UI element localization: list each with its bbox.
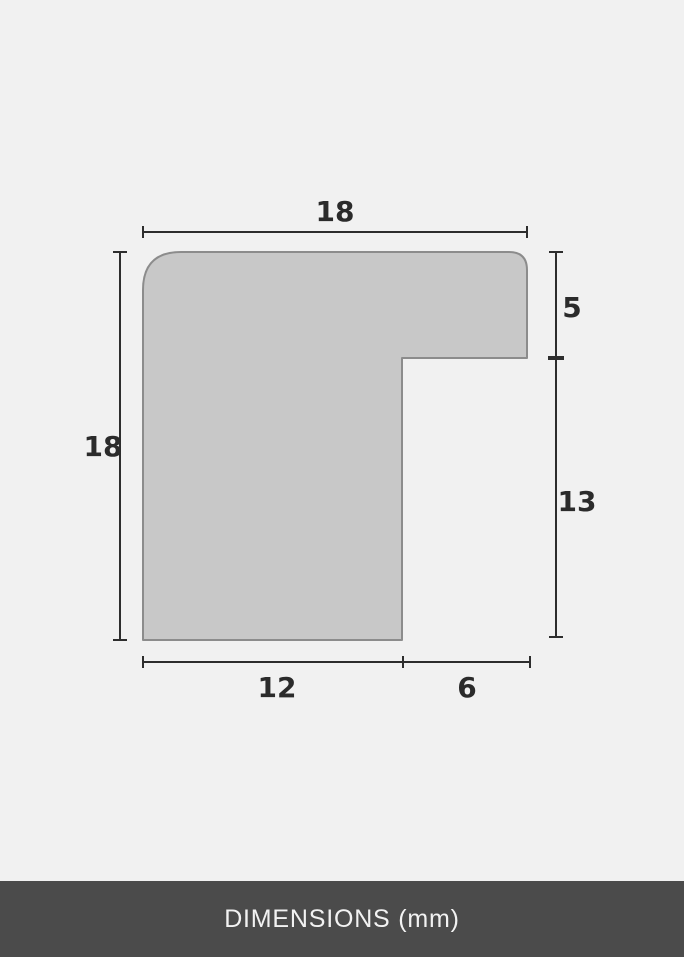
dim-line-bottom-widths bbox=[143, 656, 530, 668]
label-left-height: 18 bbox=[84, 430, 123, 463]
label-bottom-right: 6 bbox=[457, 671, 476, 704]
label-right-lower: 13 bbox=[558, 485, 597, 518]
label-top-width: 18 bbox=[316, 195, 355, 228]
frame-profile-diagram: 18 18 5 13 12 6 bbox=[0, 0, 684, 881]
label-right-upper: 5 bbox=[562, 291, 581, 324]
label-bottom-left: 12 bbox=[258, 671, 297, 704]
profile-shape bbox=[143, 252, 527, 640]
frame-dimension-page: 18 18 5 13 12 6 DIMENSIONS (mm) bbox=[0, 0, 684, 957]
footer-bar: DIMENSIONS (mm) bbox=[0, 881, 684, 957]
footer-label: DIMENSIONS (mm) bbox=[224, 905, 460, 934]
